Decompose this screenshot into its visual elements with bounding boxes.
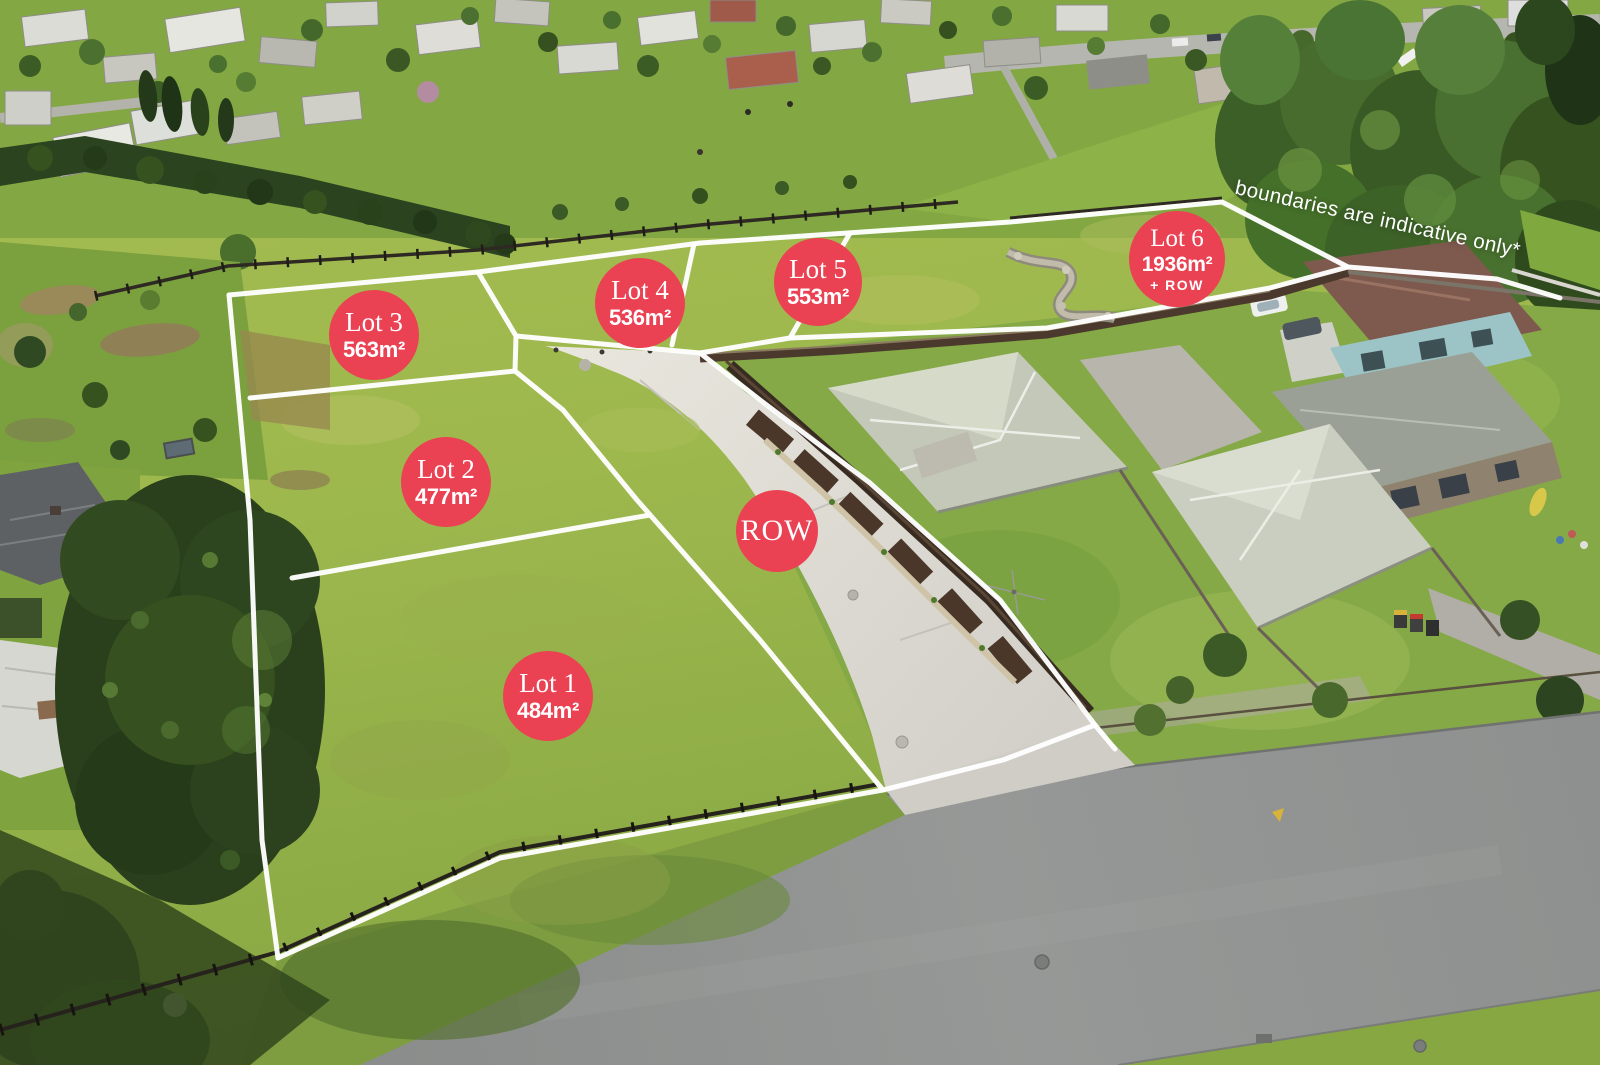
lot-3-marker: Lot 3 563m² [329,290,419,380]
lot-2-label: Lot 2 [417,456,475,484]
lot-4-area: 536m² [609,307,671,329]
lot-5-label: Lot 5 [789,256,847,284]
lot-2-marker: Lot 2 477m² [401,437,491,527]
lot-1-area: 484m² [517,700,579,722]
aerial-subdivision-photo: Lot 1 484m² Lot 2 477m² Lot 3 563m² Lot … [0,0,1600,1065]
lot-5-area: 553m² [787,286,849,308]
lot-1-marker: Lot 1 484m² [503,651,593,741]
lot-5-marker: Lot 5 553m² [774,238,862,326]
row-marker: ROW [736,490,818,572]
lot-3-area: 563m² [343,339,405,361]
lot-3-label: Lot 3 [345,309,403,337]
lot-6-marker: Lot 6 1936m² + ROW [1129,211,1225,307]
row-label: ROW [741,516,814,547]
lot-6-area: 1936m² [1142,254,1213,275]
lot-1-label: Lot 1 [519,670,577,698]
lot-6-row-note: + ROW [1150,278,1204,292]
lot-6-label: Lot 6 [1150,226,1203,252]
lot-4-marker: Lot 4 536m² [595,258,685,348]
lot-4-label: Lot 4 [611,277,669,305]
left-garden [0,242,268,480]
lot-2-area: 477m² [415,486,477,508]
